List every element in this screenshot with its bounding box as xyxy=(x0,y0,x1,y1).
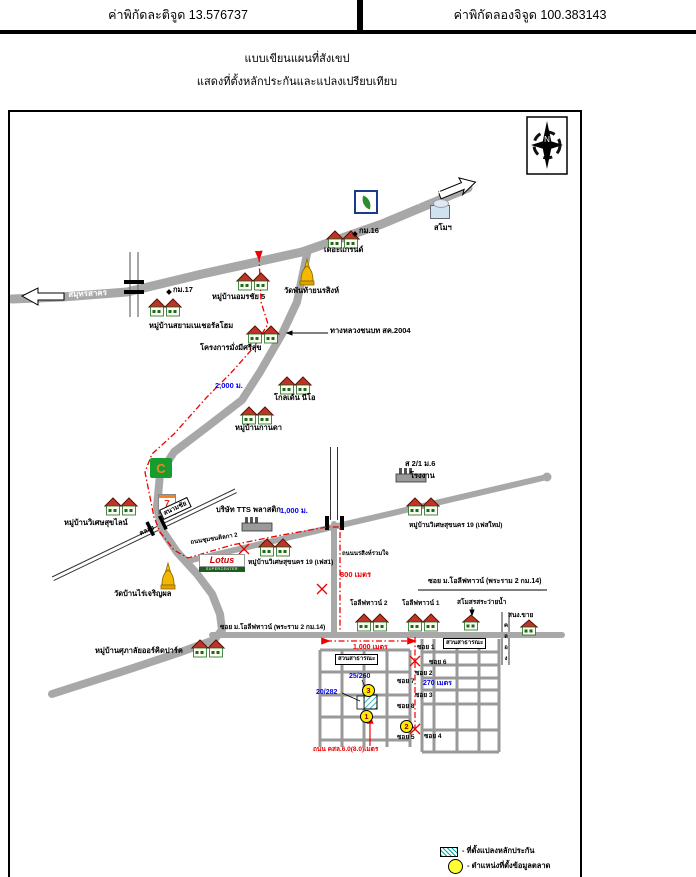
houses-amornchai xyxy=(237,273,269,290)
legend-collateral-label: - ที่ตั้งแปลงหลักประกัน xyxy=(462,846,534,855)
coordinates-header: ค่าพิกัดละติจูด 13.576737 ค่าพิกัดลองจิจ… xyxy=(0,0,696,34)
park-left-label: สวนสาธารณะ xyxy=(335,654,378,665)
km17-label: กม.17 xyxy=(173,285,193,294)
houses-wiset-line xyxy=(105,498,137,515)
compass-n: N xyxy=(544,135,550,144)
document-titles: แบบเขียนแผนที่สังเขป แสดงที่ตั้งหลักประก… xyxy=(0,48,594,94)
map-drawing: N xyxy=(10,112,580,877)
club-pool-label: สโมสรสระว่ายน้ำ xyxy=(457,598,506,607)
soi3-label: ซอย 3 xyxy=(415,691,433,700)
neighbor-plot xyxy=(357,696,364,709)
the-grand-label: เดอะแกรนด์ xyxy=(324,245,363,254)
marker-3-number: 3 xyxy=(366,686,370,695)
legend-circle-swatch xyxy=(448,859,463,874)
wiset19-p1-label: หมู่บ้านวิเศษสุขนคร 19 (เฟส1) xyxy=(248,558,333,567)
wat-banrai-label: วัดบ้านไร่เจริญผล xyxy=(114,589,171,598)
legend-hatch-swatch xyxy=(440,847,458,857)
park-right-label: สวนสาธารณะ xyxy=(443,638,486,649)
soi4-label: ซอย 4 xyxy=(424,732,442,741)
supalai-label: หมู่บ้านศุภาลัยออร์คิดปาร์ค xyxy=(95,646,183,655)
compass-rose: N xyxy=(527,117,567,174)
map-marker-1: 1 xyxy=(360,710,373,723)
norasing-road-label: ถนนนรสิงห์รวมใจ xyxy=(342,550,389,559)
temple-banrai-icon xyxy=(161,563,175,589)
wiset19-new-label: หมู่บ้านวิเศษสุขนคร 19 (เฟสใหม่) xyxy=(409,521,502,530)
distance-2000m-label: 2,000 ม. xyxy=(215,381,243,390)
map-subtitle: แสดงที่ตั้งหลักประกันและแปลงเปรียบเทียบ xyxy=(0,71,594,94)
route-cross-marks xyxy=(239,544,420,734)
houses-siam-natural xyxy=(149,299,181,316)
soi1-label: ซอย 1 xyxy=(417,643,435,652)
soi2-label: ซอย 2 xyxy=(415,669,433,678)
map-title: แบบเขียนแผนที่สังเขป xyxy=(0,48,594,71)
lotus-wordmark: Lotus xyxy=(199,554,245,567)
distance-800m-label: 800 เมตร xyxy=(340,570,371,579)
rural-highway-label: ทางหลวงชนบท สค.2004 xyxy=(330,326,411,335)
tts-plastic-label: บริษัท TTS พลาสติก xyxy=(216,505,281,514)
plot-20282-label: 20/282 xyxy=(316,688,337,697)
distance-1000m-grid-label: 1,000 เมตร xyxy=(353,643,388,652)
houses-golden-neo xyxy=(279,377,311,394)
lotus-supercenter: SUPERCENTER xyxy=(199,567,245,572)
tts-factory-icon xyxy=(242,517,272,531)
house-sales-office xyxy=(521,620,537,635)
km16-label: กม.16 xyxy=(359,226,379,235)
mangmee-label: โครงการมั่งมีศรีสุข xyxy=(200,343,262,352)
latitude-value: ค่าพิกัดละติจูด 13.576737 xyxy=(0,0,356,30)
collateral-plot xyxy=(364,695,377,709)
road-end-dot xyxy=(543,473,552,482)
distance-1000m-label: 1,000 ม. xyxy=(280,506,308,515)
soi6-label: ซอย 6 xyxy=(429,658,447,667)
legend-market-label: - ตำแหน่งที่ตั้งข้อมูลตลาด xyxy=(467,861,550,870)
samo-building-icon xyxy=(430,205,450,219)
house-club-pool xyxy=(463,615,479,630)
houses-olive2 xyxy=(356,614,388,631)
olive2-label: โอลีฟทาวน์ 2 xyxy=(350,599,387,608)
soi8-label: ซอย 8 xyxy=(397,702,415,711)
houses-kanda xyxy=(241,407,273,424)
longitude-value: ค่าพิกัดลองจิจูด 100.383143 xyxy=(364,0,696,30)
concrete-road-label: ถนน คสล.6.0(8.0)เมตร xyxy=(313,745,378,754)
soi7-label: ซอย 7 xyxy=(397,677,415,686)
address-2-1-label: ส 2/1 ม.6 xyxy=(405,459,435,468)
golden-neo-label: โกลเด้น นีโอ xyxy=(274,393,315,402)
soi5-label: ซอย 5 xyxy=(397,733,415,742)
wat-phanthai-label: วัดพันท้ายนรสิงห์ xyxy=(284,286,339,295)
factory-label: โรงงาน xyxy=(410,471,435,480)
smoke-cloud-icon xyxy=(433,199,449,208)
amornchai-label: หมู่บ้านอมรชัย 5 xyxy=(212,292,265,301)
gas-station-logo xyxy=(354,190,378,214)
marker-1-number: 1 xyxy=(364,712,368,721)
lotus-logo: Lotus SUPERCENTER xyxy=(199,554,245,572)
map-marker-2: 2 xyxy=(400,720,413,733)
header-divider xyxy=(357,0,363,34)
canal-north-strip xyxy=(331,447,338,520)
wiset-line-label: หมู่บ้านวิเศษสุขไลน์ xyxy=(64,518,128,527)
olive-soi-left-label: ซอย ม.โอลีฟทาวน์ (พระราม 2 กม.14) xyxy=(220,623,325,632)
km17-cross-road xyxy=(130,252,138,317)
leaf-icon xyxy=(359,195,373,209)
olive-soi-right-label: ซอย ม.โอลีฟทาวน์ (พระราม 2 กม.14) xyxy=(428,577,541,586)
khlong-side-label: คลอง xyxy=(501,620,509,664)
distance-270m-label: 270 เมตร xyxy=(423,679,452,688)
cj-letter: C xyxy=(156,461,165,476)
siam-natural-label: หมู่บ้านสยามเนเชอรัลโฮม xyxy=(149,321,233,330)
sales-office-label: สนง.ขาย xyxy=(508,611,533,620)
houses-olive1 xyxy=(407,614,439,631)
sketch-map-document: ค่าพิกัดละติจูด 13.576737 ค่าพิกัดลองจิจ… xyxy=(0,0,696,877)
cj-store-logo: C xyxy=(150,458,172,478)
map-marker-3: 3 xyxy=(362,684,375,697)
olive1-label: โอลีฟทาวน์ 1 xyxy=(402,599,439,608)
plot-25260-label: 25/260 xyxy=(349,672,370,681)
houses-mangmee xyxy=(247,326,279,343)
roads xyxy=(12,188,562,694)
houses-wiset19-new xyxy=(407,498,439,515)
kanda-label: หมู่บ้านกานดา xyxy=(235,423,282,432)
samo-label: สโมฯ xyxy=(434,223,452,232)
map-frame: N ถนนพระราม 2(ทล.35) กรุงเทพ ฯ สมุทรสาคร… xyxy=(8,110,582,877)
marker-2-number: 2 xyxy=(404,722,408,731)
